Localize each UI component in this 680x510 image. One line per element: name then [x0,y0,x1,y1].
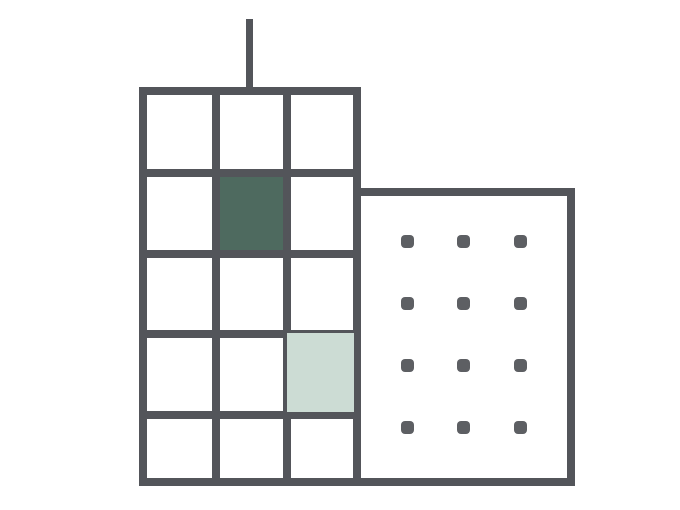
window-cell [147,419,212,478]
window-dot [514,297,527,310]
window-cell [147,338,212,411]
window-cell [220,258,283,330]
window-cell-highlighted [220,177,283,250]
window-cell [220,95,283,169]
window-dot [401,297,414,310]
tall-building [139,87,361,486]
window-cell-highlighted [287,333,354,412]
dot-window-grid [361,196,567,478]
window-cell [147,177,212,250]
window-dot [457,359,470,372]
buildings-illustration [0,0,680,510]
window-dot [514,359,527,372]
window-dot [401,235,414,248]
wide-building [353,188,575,486]
antenna-mast [246,19,253,95]
window-cell [291,419,353,478]
window-cell [147,95,212,169]
window-dot [401,359,414,372]
window-dot [457,421,470,434]
window-dot [514,235,527,248]
window-cell [291,177,353,250]
window-cell [291,95,353,169]
window-dot [514,421,527,434]
window-dot [401,421,414,434]
window-dot [457,297,470,310]
window-cell [147,258,212,330]
window-dot [457,235,470,248]
window-cell [291,258,353,330]
window-cell [220,338,283,411]
window-grid [147,95,353,478]
window-cell [220,419,283,478]
